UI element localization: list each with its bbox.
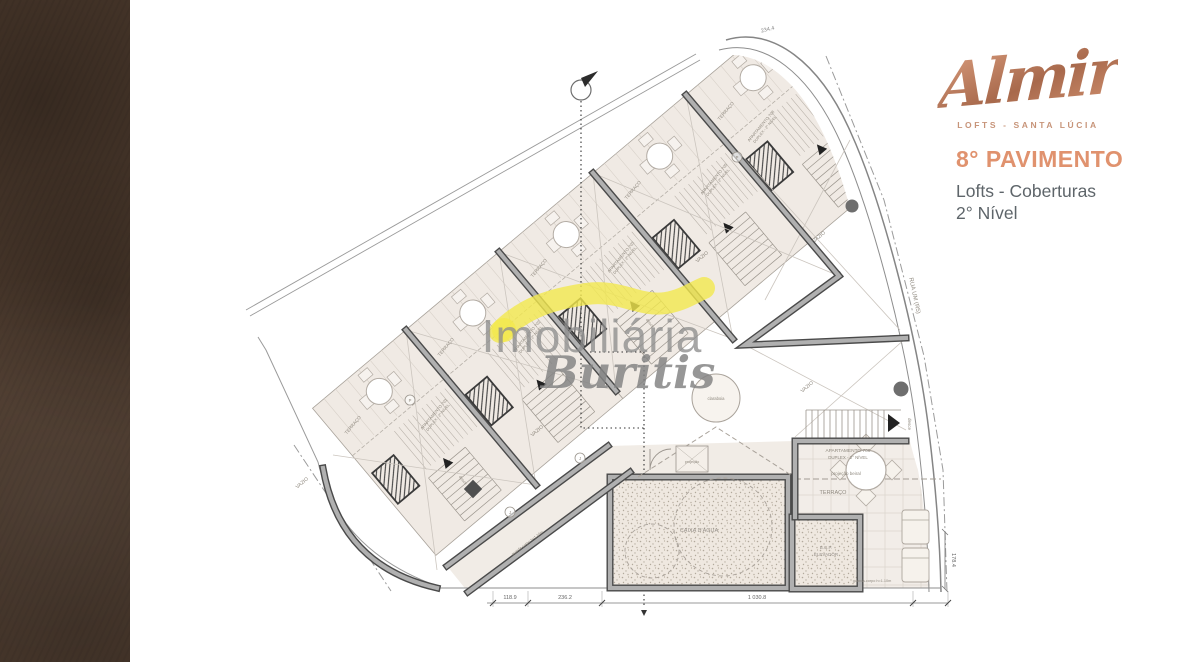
projection-label: projeção bbox=[685, 460, 700, 464]
eave-label: projeção beiral bbox=[831, 471, 861, 476]
floor-info-panel: 8° PAVIMENTO Lofts - Coberturas 2° Nível bbox=[956, 146, 1166, 225]
floor-subtitle-1: Lofts - Coberturas bbox=[956, 181, 1096, 201]
column bbox=[846, 200, 859, 213]
void-label: VAZIO bbox=[295, 476, 310, 490]
railing-label: guarda-corpo h=1.10m bbox=[853, 579, 892, 583]
marker-label: J bbox=[579, 456, 581, 461]
street-name: RUA UM (R5) bbox=[907, 277, 920, 314]
elevator-label: B.C.P. bbox=[820, 545, 832, 550]
dim-bottom-3: 1 030.8 bbox=[748, 595, 766, 601]
marker-label: P bbox=[736, 155, 739, 160]
watermark-line2: Buritis bbox=[539, 346, 716, 399]
elevator-label: ELEVADOR bbox=[814, 552, 839, 557]
svg-text:APARTAMENTO 706: APARTAMENTO 706 bbox=[826, 448, 871, 454]
dim-bottom-2: 236.2 bbox=[558, 595, 572, 601]
marker-label: J bbox=[509, 510, 511, 515]
page: P P J J 118.9 236.2 1 030.8 178.4 234.4 … bbox=[0, 0, 1183, 662]
dim-right: 178.4 bbox=[950, 553, 956, 567]
stairs-down-label: desce bbox=[907, 418, 912, 431]
void-label: VAZIO bbox=[800, 380, 815, 394]
dim-top: 234.4 bbox=[760, 25, 775, 34]
floor-subtitle-2: 2° Nível bbox=[956, 203, 1017, 223]
brand-block: Almir LOFTS - SANTA LÚCIA bbox=[938, 48, 1118, 130]
dim-bottom-1: 118.9 bbox=[503, 595, 516, 601]
brand-logo: Almir bbox=[937, 40, 1120, 118]
brand-tagline: LOFTS - SANTA LÚCIA bbox=[938, 120, 1118, 130]
terrace-label: TERRAÇO bbox=[820, 490, 848, 496]
svg-text:DUPLEX - 2° NÍVEL: DUPLEX - 2° NÍVEL bbox=[828, 455, 868, 460]
column bbox=[894, 382, 909, 397]
floor-title: 8° PAVIMENTO bbox=[956, 146, 1166, 173]
marker-label: P bbox=[409, 398, 412, 403]
water-tank-label: CAIXA D'ÁGUA bbox=[680, 527, 719, 534]
